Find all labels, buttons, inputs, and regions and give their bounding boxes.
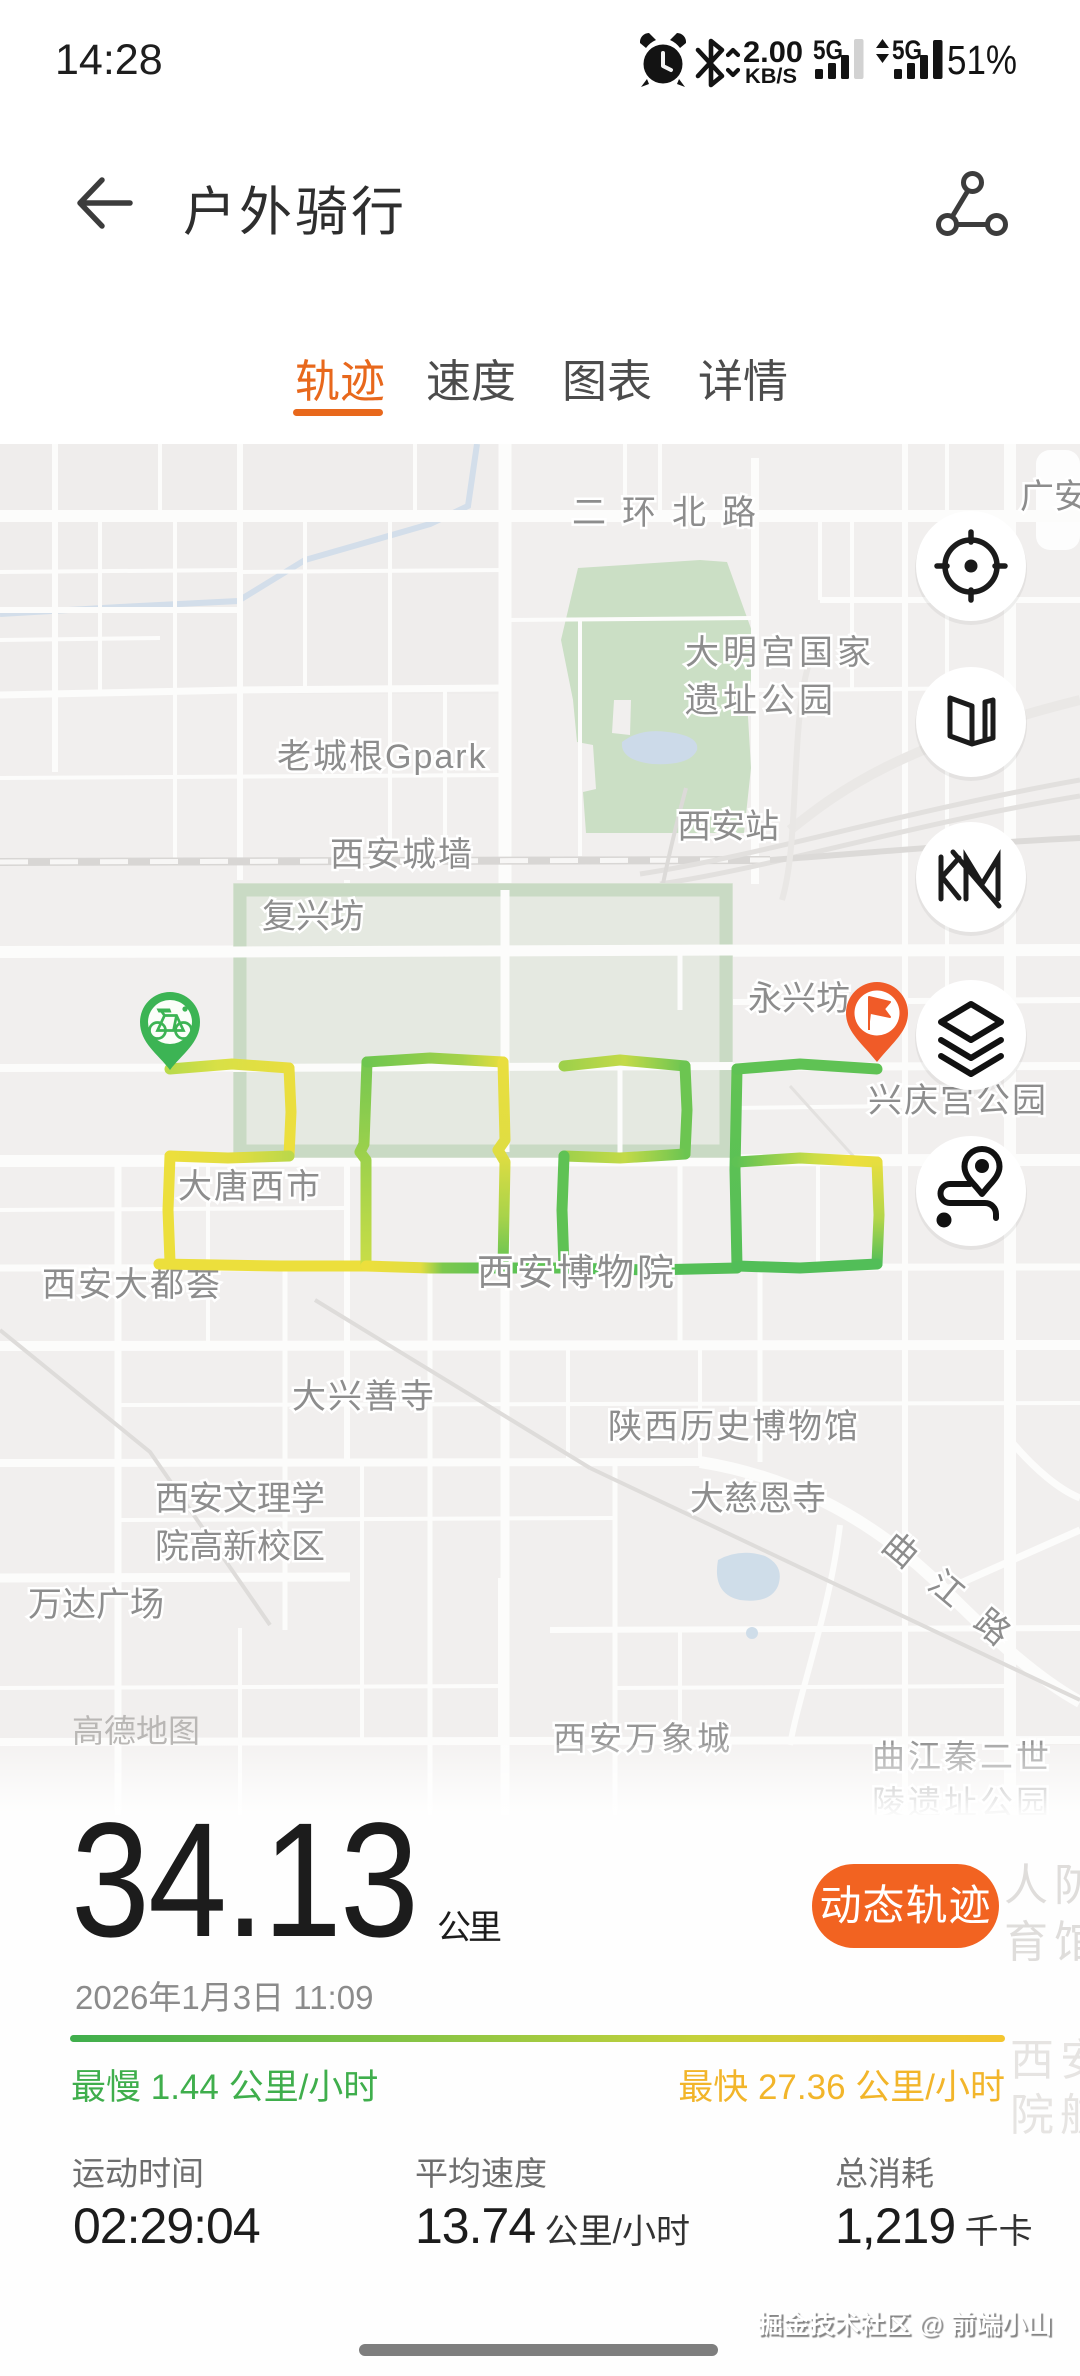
svg-text:5G: 5G [813, 35, 843, 65]
svg-text:老城根Gpark: 老城根Gpark [277, 738, 488, 776]
svg-text:二环北路: 二环北路 [572, 494, 772, 532]
svg-text:西安城墙: 西安城墙 [330, 836, 474, 874]
svg-text:大兴善寺: 大兴善寺 [292, 1378, 436, 1416]
svg-text:广安: 广安 [1020, 478, 1080, 516]
svg-text:复兴坊: 复兴坊 [262, 898, 364, 936]
svg-text:万达广场: 万达广场 [28, 1586, 164, 1624]
svg-text:高德地图: 高德地图 [72, 1713, 200, 1749]
svg-text:院高新校区: 院高新校区 [155, 1528, 325, 1566]
svg-text:大明宫国家: 大明宫国家 [685, 634, 875, 672]
svg-text:永兴坊: 永兴坊 [748, 980, 850, 1018]
svg-text:大唐西市: 大唐西市 [178, 1168, 322, 1206]
svg-text:51%: 51% [947, 37, 1017, 83]
svg-text:遗址公园: 遗址公园 [685, 682, 837, 720]
svg-text:西安站: 西安站 [677, 808, 779, 846]
svg-text:西安大都荟: 西安大都荟 [42, 1266, 222, 1304]
svg-text:西安文理学: 西安文理学 [155, 1480, 325, 1518]
svg-text:陕西历史博物馆: 陕西历史博物馆 [608, 1408, 860, 1446]
svg-text:大慈恩寺: 大慈恩寺 [690, 1480, 826, 1518]
svg-text:KB/S: KB/S [745, 65, 797, 88]
svg-text:西安博物院: 西安博物院 [477, 1252, 677, 1293]
svg-text:5G: 5G [892, 35, 922, 65]
